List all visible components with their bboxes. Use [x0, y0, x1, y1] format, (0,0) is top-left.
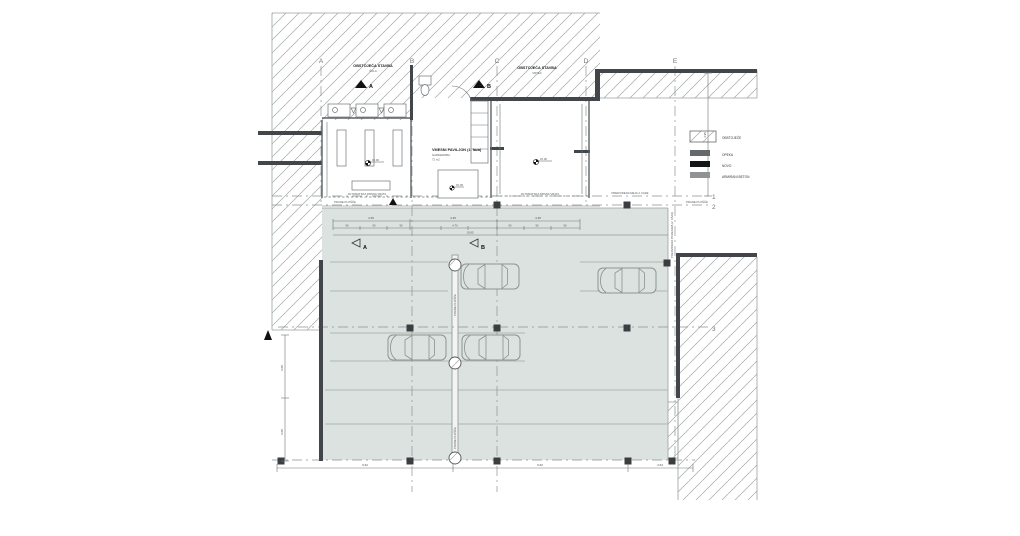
dim-sub-3: 90 [399, 224, 403, 228]
dim-sub-6: 90 [535, 224, 539, 228]
dim-bottom-3: 3.64 [657, 463, 663, 467]
north-marker [264, 330, 272, 340]
legend: OBSTOJEČE OPEKA NOVO ARMIRANI BETON [690, 131, 750, 179]
level-marker-2: ±0.00 [533, 157, 552, 165]
dim-top-1: 4.45 [368, 216, 374, 220]
dim-top-3: 4.45 [535, 216, 541, 220]
car-1 [461, 264, 519, 289]
section-b-top: B [487, 84, 491, 90]
floor-plan-drawing: A B C D E 1 2 3 [0, 0, 1020, 536]
section-a-bottom: A [363, 245, 367, 251]
car-2 [598, 268, 656, 293]
prane-wall-label-1: PRANE PLOŠČE [452, 294, 457, 316]
level-value: ±0.00 [540, 157, 547, 161]
level-value: ±0.00 [456, 183, 463, 187]
door-label-1: AVTOMATSKA DRSNA VRATA [348, 192, 387, 196]
area2-label-line2: VRTEC [532, 71, 541, 75]
area1-label-line1: OBSTOJEČA STAVBA [353, 63, 393, 68]
section-a-top: A [369, 84, 373, 90]
legend-label-new: NOVO [722, 164, 732, 168]
prane-label-2: PRANE PLOŠČE [686, 199, 708, 204]
grid-col-a: A [319, 58, 324, 65]
dim-left-2: 6.05 [280, 429, 284, 435]
dim-sub-7: 90 [563, 224, 567, 228]
legend-label-existing: OBSTOJEČE [722, 135, 741, 140]
legend-row-brick: OPEKA [690, 150, 734, 157]
floor-plan-canvas: A B C D E 1 2 3 [0, 0, 1020, 536]
dim-left-1: 6.05 [280, 365, 284, 371]
car-4 [462, 335, 520, 360]
door-label-2: AVTOMATSKA DRSNA VRATA [521, 192, 560, 196]
area2-label-line1: OBSTOJEČA STAVBA [517, 65, 557, 70]
pavilion-title: VMESNI PAVILJON (1. faza) [432, 148, 482, 152]
legend-row-new: NOVO [690, 161, 732, 168]
dimension-left: 6.05 6.05 [280, 335, 289, 461]
grid-col-e: E [673, 58, 678, 65]
section-b-bottom: B [481, 245, 485, 251]
grid-col-d: D [584, 58, 589, 65]
level-value: ±0.00 [372, 158, 379, 162]
reserve-vertical-label: PREDVIDENA POVEZAVA (2. FAZA) [670, 212, 674, 258]
grid-col-c: C [495, 58, 500, 65]
grid-col-b: B [410, 58, 414, 65]
legend-swatch-hatch [690, 131, 716, 142]
grid-row-2: 2 [712, 204, 716, 211]
grid-row-3: 3 [712, 326, 716, 333]
dim-sub-1: 90 [345, 224, 349, 228]
legend-row-existing: OBSTOJEČE [690, 131, 741, 142]
reserve-horizontal-label: PREDVIDENA MEJA 2. FAZE [612, 191, 649, 195]
warning-marker [389, 198, 397, 205]
car-3 [388, 335, 446, 360]
grid-row-1: 1 [712, 194, 716, 201]
dim-sub-4: 4.70 [452, 224, 458, 228]
dim-top-2: 4.45 [450, 216, 456, 220]
area1-label-line2: ŠOLA [369, 68, 377, 73]
legend-row-concrete: ARMIRANI BETON [690, 172, 750, 179]
dim-bottom-1: 9.62 [362, 463, 368, 467]
legend-swatch-gray [690, 172, 710, 178]
legend-label-brick: OPEKA [722, 153, 734, 157]
dim-top-total: 19.85 [467, 231, 474, 235]
pavilion-area: 72 m2 [432, 158, 440, 162]
pavilion-room: GARDEROBA [432, 153, 450, 157]
dim-sub-5: 90 [508, 224, 512, 228]
dim-sub-2: 90 [372, 224, 376, 228]
prane-label-1: PRANE PLOŠČE [334, 199, 356, 204]
legend-swatch-darkgray [690, 150, 710, 156]
legend-swatch-black [690, 161, 710, 167]
prane-wall-label-2: PRANE PLOŠČE [452, 427, 457, 449]
legend-label-concrete: ARMIRANI BETON [722, 175, 750, 179]
dim-bottom-2: 9.62 [537, 463, 543, 467]
